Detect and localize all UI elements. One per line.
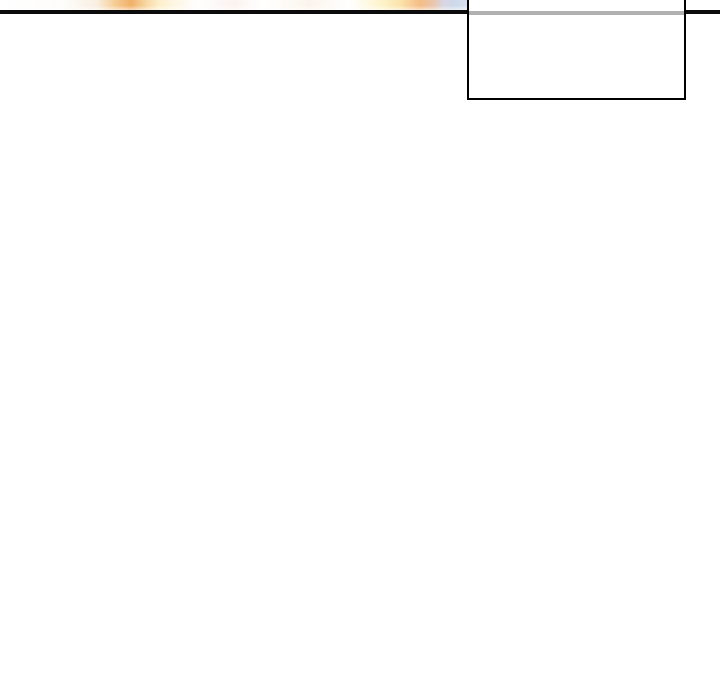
page [0,0,720,700]
dropdown-panel[interactable] [467,0,686,100]
dropdown-item-list [469,15,684,98]
